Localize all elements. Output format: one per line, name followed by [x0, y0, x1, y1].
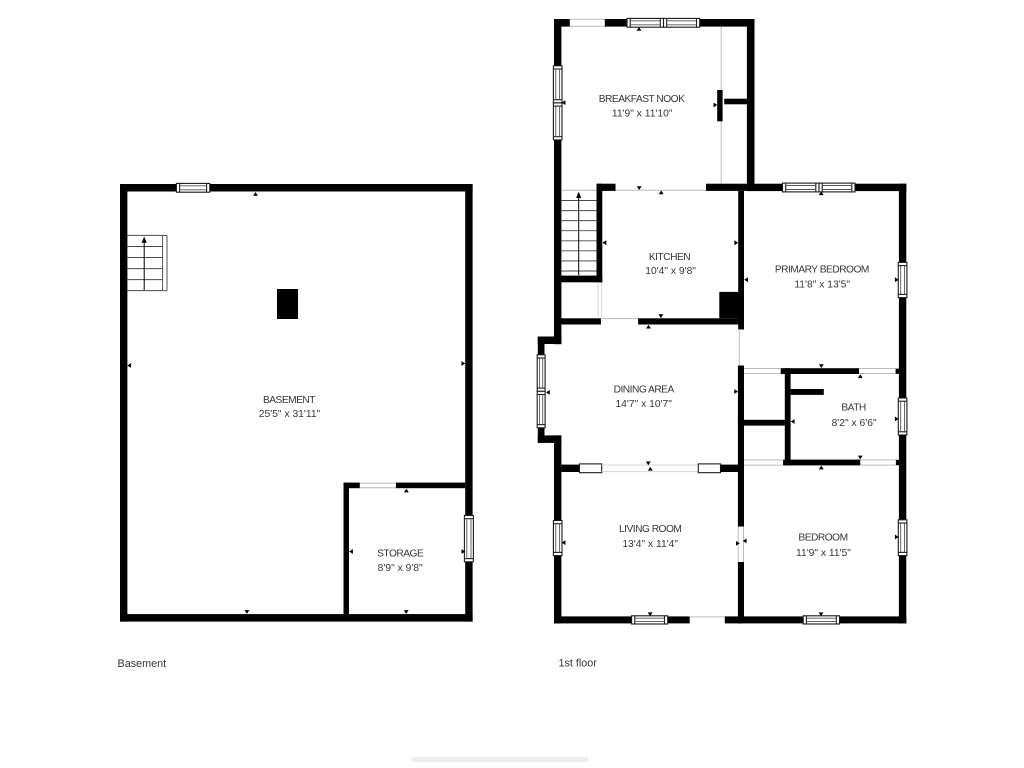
svg-text:PRIMARY BEDROOM: PRIMARY BEDROOM	[775, 264, 869, 275]
svg-text:KITCHEN: KITCHEN	[649, 252, 690, 263]
svg-text:1st floor: 1st floor	[559, 658, 598, 670]
svg-text:STORAGE: STORAGE	[377, 549, 424, 560]
svg-text:LIVING ROOM: LIVING ROOM	[619, 524, 681, 535]
svg-text:8'9" x 9'8": 8'9" x 9'8"	[378, 563, 423, 574]
svg-text:DINING AREA: DINING AREA	[614, 385, 675, 396]
svg-text:8'2" x 6'6": 8'2" x 6'6"	[832, 418, 877, 429]
svg-text:BEDROOM: BEDROOM	[798, 533, 847, 544]
svg-text:11'8" x 13'5": 11'8" x 13'5"	[794, 280, 850, 291]
svg-text:BASEMENT: BASEMENT	[263, 395, 315, 406]
svg-text:10'4" x 9'8": 10'4" x 9'8"	[645, 266, 696, 277]
svg-text:11'9" x 11'5": 11'9" x 11'5"	[796, 548, 851, 559]
svg-text:25'5" x 31'11": 25'5" x 31'11"	[259, 409, 321, 420]
svg-text:13'4" x 11'4": 13'4" x 11'4"	[622, 539, 678, 550]
svg-text:BREAKFAST NOOK: BREAKFAST NOOK	[599, 94, 685, 105]
svg-text:14'7" x 10'7": 14'7" x 10'7"	[615, 399, 672, 410]
svg-text:Basement: Basement	[118, 658, 167, 670]
svg-text:BATH: BATH	[841, 403, 866, 414]
svg-text:11'9" x 11'10": 11'9" x 11'10"	[612, 108, 673, 119]
